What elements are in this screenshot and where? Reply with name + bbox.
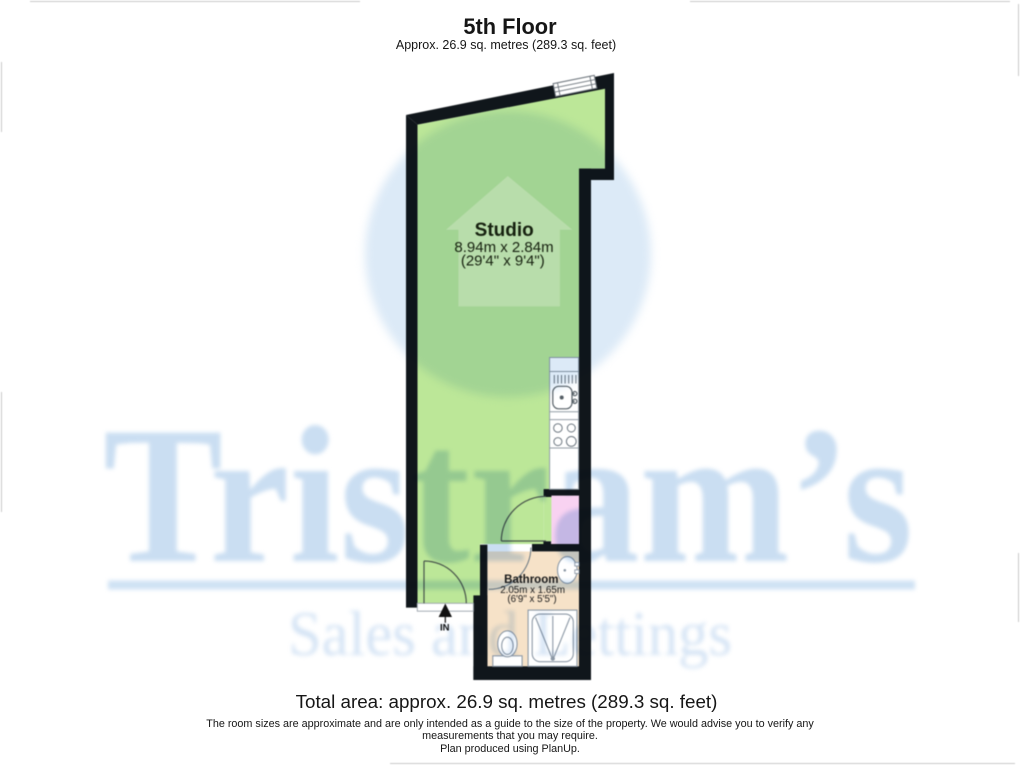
svg-text:Tristram’s: Tristram’s [103, 387, 913, 604]
svg-text:Sales and Lettings: Sales and Lettings [288, 598, 732, 669]
